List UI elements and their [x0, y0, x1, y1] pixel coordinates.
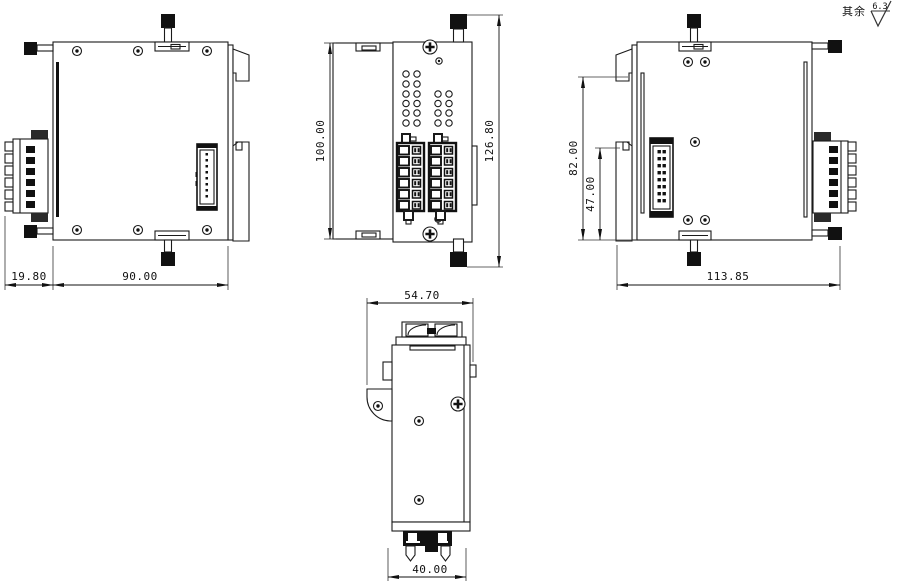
- screw-icon: [374, 402, 383, 411]
- dim-connector-depth: 19.80: [11, 270, 47, 283]
- flange-panel: [333, 43, 393, 239]
- screw-icon: [701, 216, 710, 225]
- dim-lower-height: 47.00: [584, 176, 597, 212]
- screw-icon: [134, 226, 143, 235]
- terminal-connector-end-top: [396, 322, 466, 345]
- screw-icon: [73, 226, 82, 235]
- side-lug: [383, 362, 392, 380]
- screw-icon: [73, 47, 82, 56]
- flange-groove: [56, 62, 59, 217]
- screw-icon: [203, 47, 212, 56]
- screw-icon: [691, 138, 700, 147]
- screw-icon: [684, 58, 693, 67]
- dim-clip-height: 82.00: [567, 140, 580, 176]
- terminal-block-left: [397, 134, 424, 224]
- dim-overall-width: 113.85: [707, 270, 750, 283]
- screw-icon: [701, 58, 710, 67]
- screw-icon: [134, 47, 143, 56]
- body-outline: [392, 345, 470, 522]
- phillips-screw-icon: [451, 397, 465, 411]
- screw-icon: [415, 496, 424, 505]
- dim-body-height: 100.00: [314, 120, 327, 163]
- side-tab: [470, 365, 476, 377]
- phillips-screw-icon: [423, 227, 437, 241]
- dim-body-width: 90.00: [122, 270, 158, 283]
- screw-icon: [436, 58, 442, 64]
- technical-drawing: 19.80 90.00: [0, 0, 901, 583]
- dim-terminal-width: 40.00: [412, 563, 448, 576]
- header-connector: [650, 138, 673, 217]
- phillips-screw-icon: [423, 40, 437, 54]
- screw-icon: [684, 216, 693, 225]
- din-rail-edge: [472, 146, 477, 205]
- screw-icon: [203, 226, 212, 235]
- screw-icon: [415, 417, 424, 426]
- din-rail-clip: [228, 45, 249, 241]
- din-rail-clip: [616, 45, 637, 241]
- header-connector: [196, 144, 218, 210]
- note-prefix: 其余: [842, 4, 866, 18]
- dim-overall-depth: 54.70: [404, 289, 440, 302]
- drawing-canvas: 19.80 90.00: [0, 0, 901, 583]
- terminal-block-right: [429, 134, 456, 224]
- dim-overall-height: 126.80: [483, 120, 496, 163]
